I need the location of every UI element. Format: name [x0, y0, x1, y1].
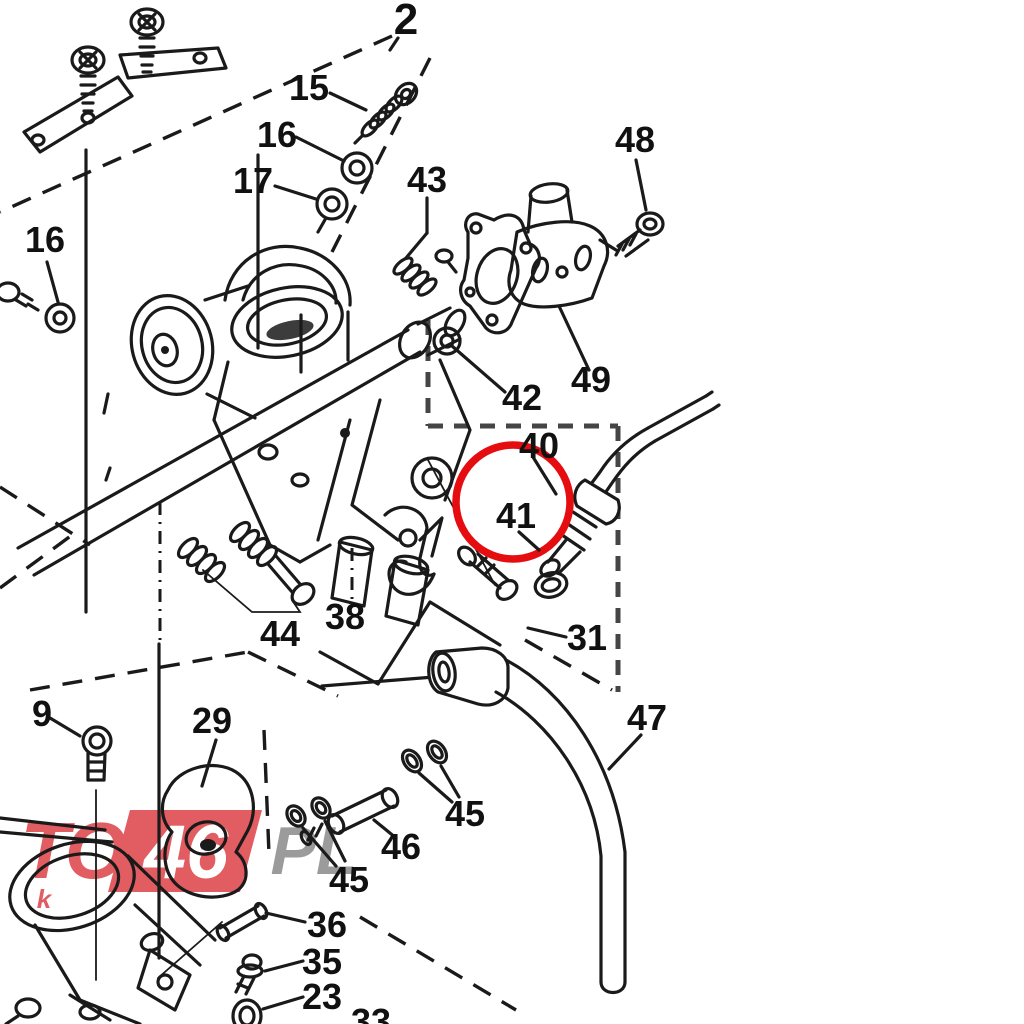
part-43-spring-screw: [391, 198, 456, 298]
part-31-oring: [532, 569, 569, 600]
parts-diagram-page: TO 46 PL k: [0, 0, 1024, 1024]
part-label-31: 31: [567, 617, 607, 658]
part-44-springs: [175, 519, 318, 612]
part-35-screw: [236, 955, 262, 994]
part-16-washer: [342, 153, 372, 183]
part-label-43: 43: [407, 159, 447, 200]
part-label-42: 42: [502, 377, 542, 418]
part-9-bolt: [83, 727, 111, 780]
cable-bracket-assembly: [24, 9, 226, 152]
part-label-29: 29: [192, 700, 232, 741]
part-36-pin: [215, 902, 269, 943]
part-label-47: 47: [627, 697, 667, 738]
part-label-40: 40: [519, 425, 559, 466]
watermark: TO 46 PL k: [20, 806, 357, 914]
part-label-46: 46: [381, 826, 421, 867]
part-label-45a: 45: [445, 793, 485, 834]
part-label-16b: 16: [25, 219, 65, 260]
part-label-15: 15: [289, 67, 329, 108]
part-16-left-washer: [0, 283, 74, 332]
part-label-49: 49: [571, 359, 611, 400]
part-label-44: 44: [260, 613, 300, 654]
part-label-16: 16: [257, 114, 297, 155]
part-label-36: 36: [307, 904, 347, 945]
watermark-small-text: k: [37, 884, 53, 914]
part-label-17: 17: [233, 160, 273, 201]
bracket-screw-icon: [131, 9, 163, 72]
watermark-left-text: TO: [20, 806, 125, 895]
part-label-45b: 45: [329, 859, 369, 900]
bracket-upper-bar: [120, 48, 226, 78]
parts-diagram: TO 46 PL k: [0, 0, 1024, 1024]
part-48-screw: [616, 213, 663, 256]
part-17-ring: [317, 189, 347, 232]
part-label-33: 33: [351, 1001, 391, 1024]
part-label-38: 38: [325, 596, 365, 637]
part-label-9: 9: [32, 693, 52, 734]
part-label-23: 23: [302, 976, 342, 1017]
part-label-41: 41: [496, 495, 536, 536]
part-23-grommet: [233, 1000, 261, 1024]
bracket-lower-arm: [24, 77, 132, 152]
part-label-48: 48: [615, 119, 655, 160]
part-label-2: 2: [394, 0, 418, 44]
